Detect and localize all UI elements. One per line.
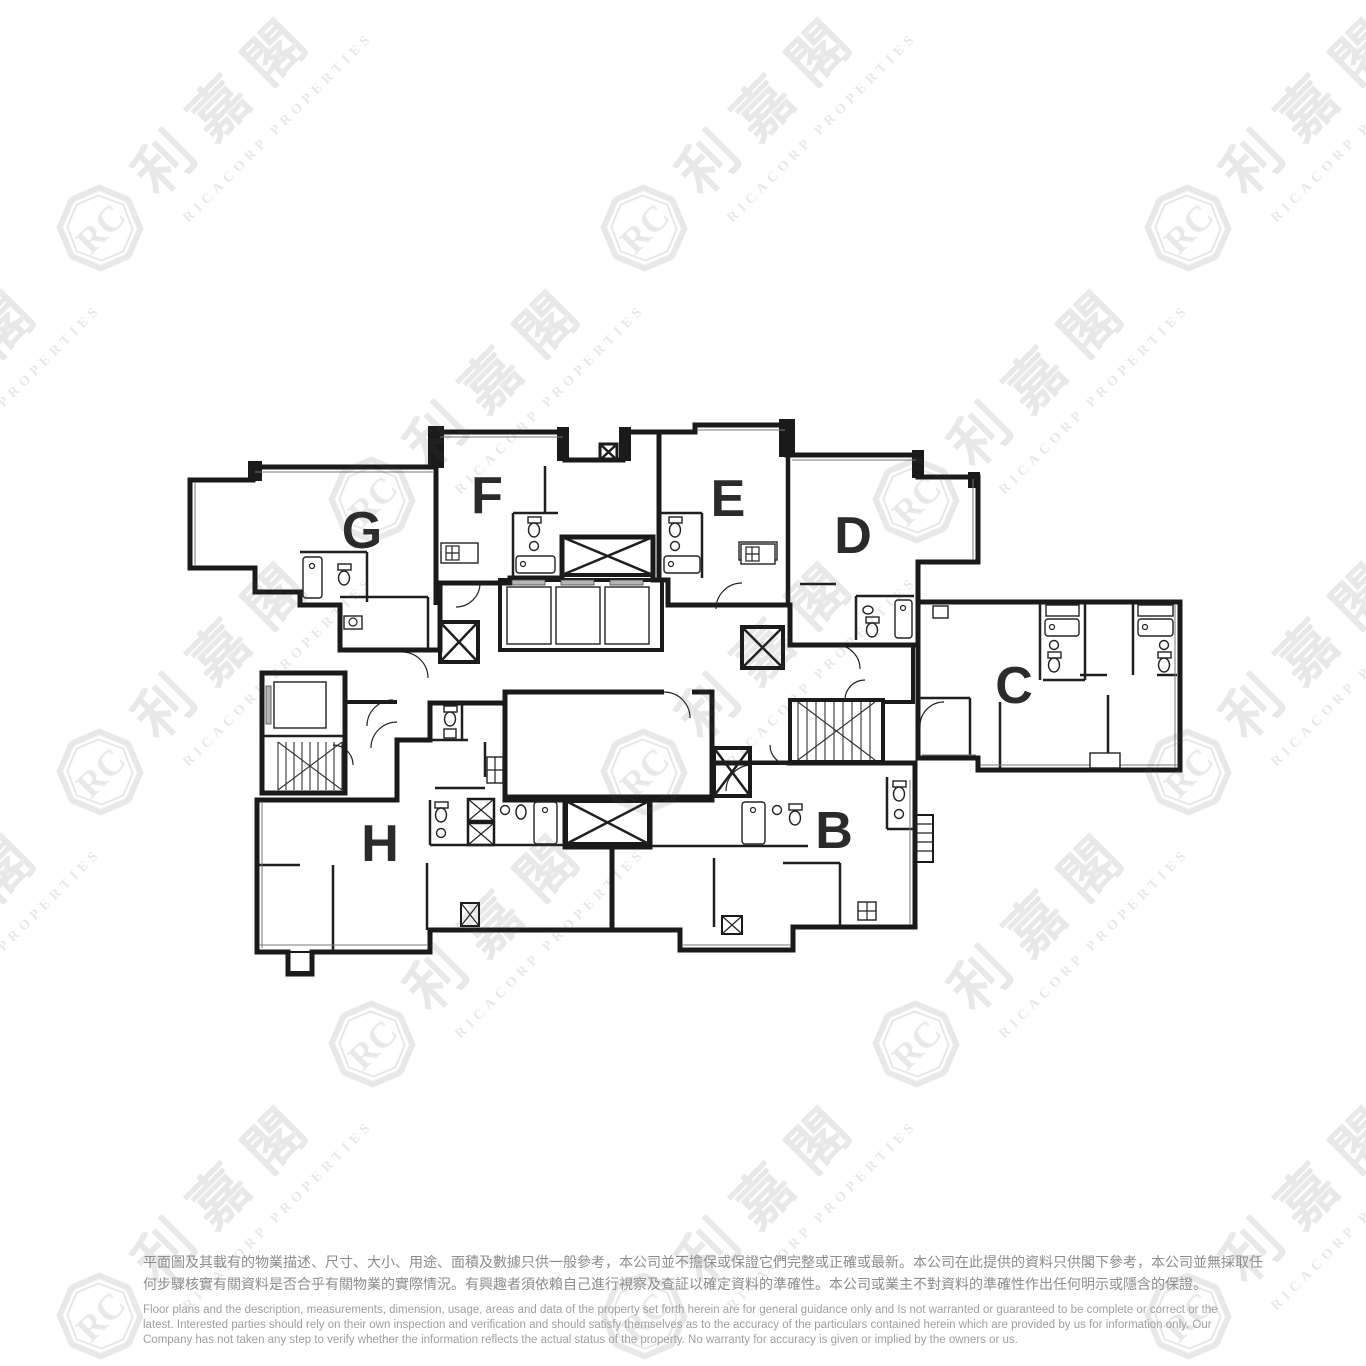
left-elevator-car [274, 682, 326, 728]
watermark-en-text: RICACORP PROPERTIES [1269, 1118, 1366, 1315]
watermark-tile: RC利嘉閣RICACORP PROPERTIES [0, 235, 105, 577]
watermark-cjk-text: 利嘉閣 [1211, 0, 1366, 205]
disclaimer: 平面圖及其載有的物業描述、尺寸、大小、用途、面積及數據只供一般參考，本公司並不擔… [143, 1252, 1233, 1348]
central-lobby-room [505, 689, 712, 797]
watermark-cjk-text: 利嘉閣 [0, 270, 58, 476]
disclaimer-en: Floor plans and the description, measure… [143, 1303, 1233, 1348]
b-balcony-platform [915, 815, 933, 862]
h-bottom-stub [288, 952, 312, 972]
page: G F E D C H B RC利嘉閣RICACORP PROPERTIESRC… [0, 0, 1366, 1366]
right-stair-block [790, 700, 883, 762]
disclaimer-en-line2: latest. Interested parties should rely o… [143, 1318, 1233, 1333]
ricacorp-logo-icon: RC [851, 0, 981, 21]
bathroom-fixtures-g [303, 557, 362, 629]
watermark-tile: RC利嘉閣RICACORP PROPERTIES [1123, 0, 1366, 306]
unit-e-label: E [711, 470, 746, 528]
unit-d-label: D [834, 507, 872, 565]
ricacorp-logo-icon: RC [851, 979, 981, 1109]
unit-c-label: C [995, 657, 1033, 715]
watermark-tile: RC利嘉閣RICACORP PROPERTIES [307, 0, 649, 34]
watermark-en-text: RICACORP PROPERTIES [181, 30, 378, 227]
right-duct-shaft [742, 627, 783, 668]
left-stair-block [262, 673, 345, 793]
unit-b-label: B [815, 802, 853, 860]
svg-text:RC: RC [340, 1012, 405, 1077]
watermark-tile: RC利嘉閣RICACORP PROPERTIES [35, 0, 377, 306]
central-elevator-shaft [562, 537, 653, 575]
watermark-en-text: RICACORP PROPERTIES [1269, 30, 1366, 227]
bathroom-fixtures-h [435, 706, 557, 844]
watermark-tile: RC利嘉閣RICACORP PROPERTIES [0, 0, 105, 34]
svg-text:RC: RC [68, 196, 133, 261]
watermark-en-text: RICACORP PROPERTIES [1269, 574, 1366, 771]
svg-text:RC: RC [612, 196, 677, 261]
svg-text:RC: RC [68, 1284, 133, 1349]
ricacorp-logo-icon: RC [307, 979, 437, 1109]
h-b-shared-duct [566, 801, 649, 844]
central-elevator-bank [500, 580, 662, 650]
watermark-cjk-text: 利嘉閣 [0, 814, 58, 1020]
bathroom-fixtures-d [741, 544, 912, 638]
watermark-tile: RC利嘉閣RICACORP PROPERTIES [0, 779, 105, 1121]
disclaimer-en-line3: Company has not taken any step to verify… [143, 1333, 1233, 1348]
ricacorp-logo-icon: RC [35, 707, 165, 837]
watermark-tile: RC利嘉閣RICACORP PROPERTIES [579, 0, 921, 306]
ricacorp-logo-icon: RC [307, 0, 437, 21]
watermark-en-text: RICACORP PROPERTIES [0, 302, 105, 499]
unit-f-label: F [471, 467, 503, 525]
b-entry-corridor [752, 765, 790, 798]
left-duct-shaft [440, 622, 478, 662]
disclaimer-en-line1: Floor plans and the description, measure… [143, 1303, 1233, 1318]
unit-h-label: H [361, 815, 399, 873]
svg-text:RC: RC [68, 740, 133, 805]
ricacorp-logo-icon: RC [35, 163, 165, 293]
unit-g-label: G [342, 502, 382, 560]
watermark-cjk-text: 利嘉閣 [667, 0, 873, 205]
watermark-cjk-text: 利嘉閣 [123, 0, 329, 205]
ricacorp-logo-icon: RC [579, 163, 709, 293]
svg-text:RC: RC [1156, 196, 1221, 261]
disclaimer-zh-line1: 平面圖及其載有的物業描述、尺寸、大小、用途、面積及數據只供一般參考，本公司並不擔… [143, 1252, 1233, 1274]
svg-text:RC: RC [884, 1012, 949, 1077]
watermark-en-text: RICACORP PROPERTIES [0, 846, 105, 1043]
right-elevator-shaft [714, 748, 750, 796]
interior-partitions [257, 466, 1177, 952]
disclaimer-zh-line2: 何步驟核實有關資料是否合乎有關物業的實際情況。有興趣者須依賴自己進行視察及查証以… [143, 1274, 1233, 1296]
ricacorp-logo-icon: RC [1123, 163, 1253, 293]
watermark-en-text: RICACORP PROPERTIES [725, 30, 922, 227]
floor-plan: G F E D C H B [185, 410, 1190, 990]
watermark-tile: RC利嘉閣RICACORP PROPERTIES [851, 0, 1193, 34]
bathroom-fixtures-f [441, 517, 555, 573]
watermark-cjk-text: 利嘉閣 [1211, 542, 1366, 748]
